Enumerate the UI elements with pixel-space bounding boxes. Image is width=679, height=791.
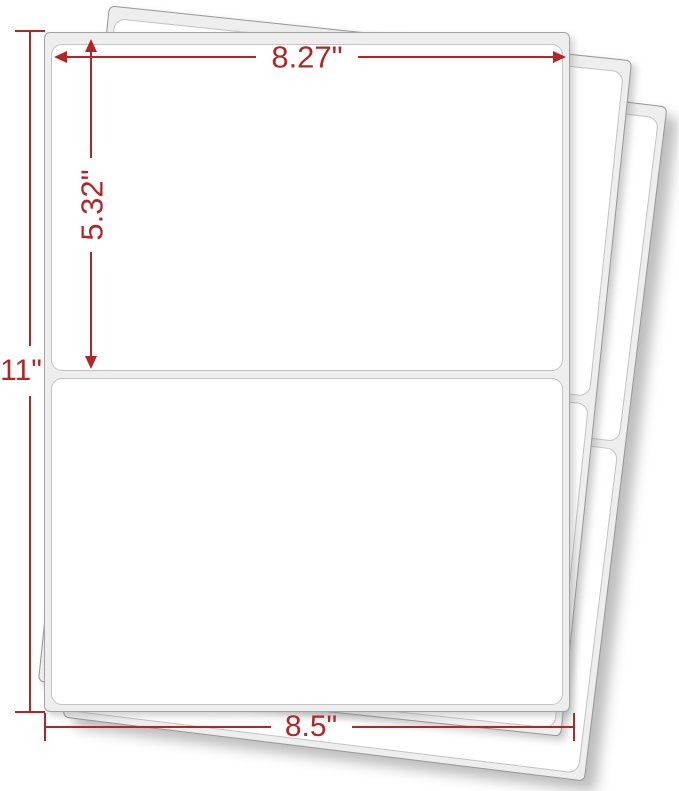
- label-width-value: 8.27": [271, 42, 342, 73]
- dimension-line: [67, 56, 256, 58]
- sheet-height-value: 11": [0, 356, 42, 386]
- dimension-line: [90, 252, 92, 356]
- dimension-line: [352, 726, 573, 728]
- dimension-line: [29, 32, 31, 346]
- front-sheet-bottom-label: [51, 378, 563, 705]
- dimension-line: [90, 52, 92, 158]
- front-sheet: [44, 32, 570, 712]
- dimension-line: [358, 56, 553, 58]
- dimension-end-tick: [15, 711, 45, 713]
- arrowhead-up-icon: [85, 39, 97, 52]
- label-sheet-product-illustration: 8.27" 5.32" 11" 8.5": [0, 0, 679, 791]
- label-height-value: 5.32": [77, 169, 108, 240]
- arrowhead-down-icon: [85, 356, 97, 369]
- dimension-line: [29, 396, 31, 711]
- front-sheet-top-label: [51, 44, 563, 371]
- arrowhead-left-icon: [54, 51, 67, 63]
- sheet-width-value: 8.5": [285, 712, 337, 742]
- dimension-line: [46, 726, 271, 728]
- arrowhead-right-icon: [553, 51, 566, 63]
- dimension-end-tick: [573, 713, 575, 741]
